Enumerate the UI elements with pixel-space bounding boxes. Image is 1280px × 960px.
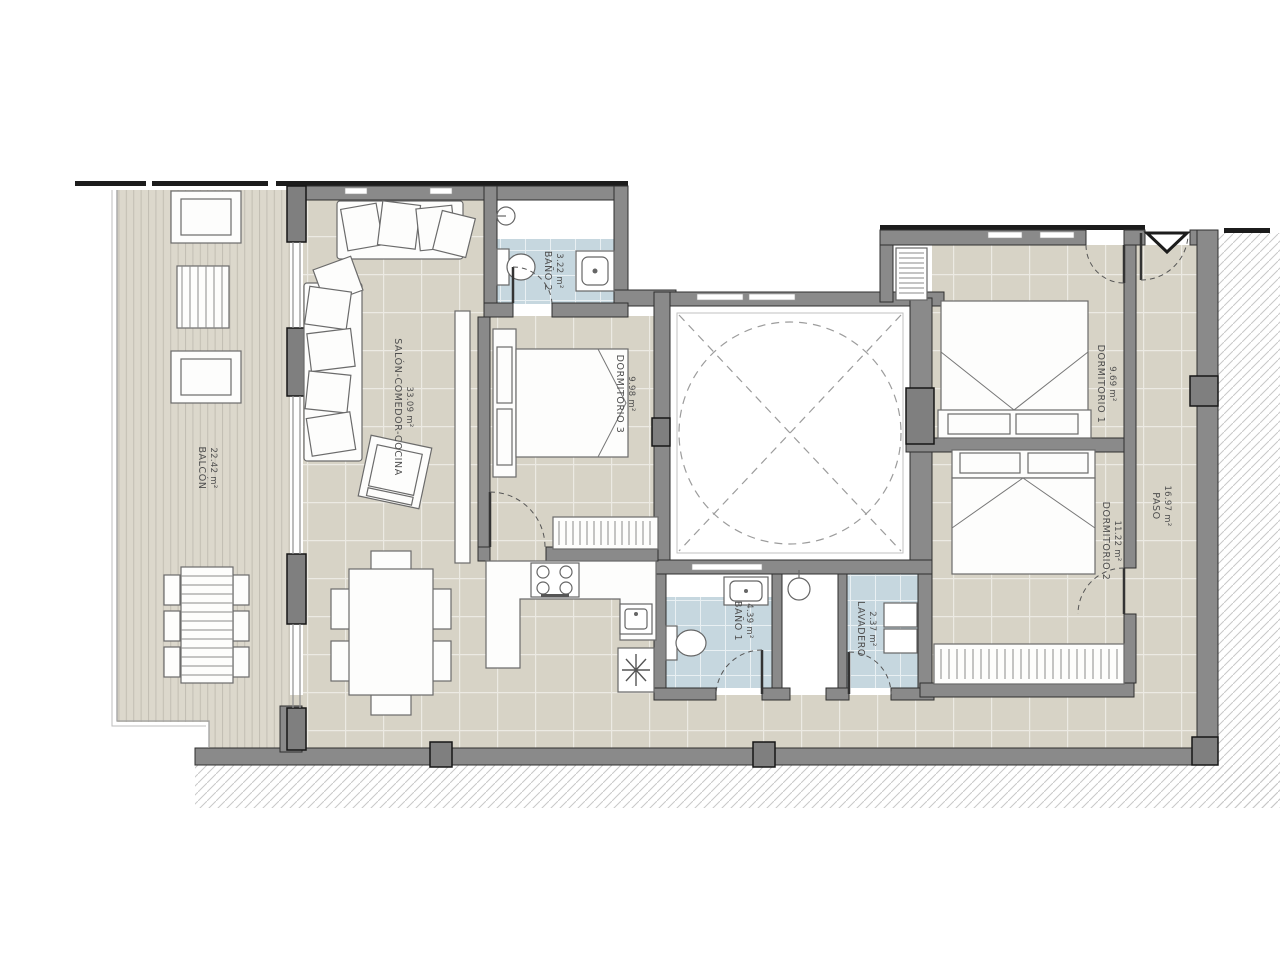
wardrobe-dormitorio-2: [934, 644, 1124, 684]
room-name: LAVADERO: [855, 601, 866, 657]
balcony-armchair-2: [171, 351, 241, 403]
room-area: 3.22 m²: [554, 253, 564, 288]
bed-dormitorio-2: [952, 450, 1095, 574]
kitchen-sink-icon: [620, 604, 652, 634]
room-area: 9.69 m²: [1107, 366, 1117, 401]
bath2-ceiling-light-icon: [497, 207, 515, 225]
room-name: SALÓN-COMEDOR-COCINA: [392, 338, 404, 476]
bath2-washbasin-icon: [576, 251, 614, 291]
room-name: DORMITORIO 3: [614, 355, 625, 434]
tv-sideboard: [455, 311, 470, 563]
balcony-armchair-1: [171, 191, 241, 243]
room-area: 11.22 m²: [1112, 520, 1122, 561]
fridge-snowflake-icon: [618, 648, 654, 692]
balcony-glazing: [293, 242, 300, 708]
radiator-grille: [896, 248, 927, 300]
stove-icon: [531, 563, 579, 597]
room-area: 16.97 m²: [1162, 485, 1172, 526]
room-name: BAÑO 1: [732, 601, 743, 641]
room-name: DORMITORIO 1: [1095, 345, 1106, 424]
balcony-side-table: [177, 266, 229, 328]
balcony-dining-table: [164, 567, 249, 683]
dining-table: [331, 551, 451, 715]
room-name: BAÑO 2: [542, 251, 553, 291]
bed-dormitorio-1: [938, 301, 1091, 438]
floor-plan-svg: BALCÓN 22.42 m² SALÓN-COMEDOR-COCINA 33.…: [0, 0, 1280, 960]
room-area: 22.42 m²: [208, 447, 218, 488]
room-name: BALCÓN: [196, 446, 208, 489]
room-label-balcon: BALCÓN 22.42 m²: [196, 446, 218, 489]
bed-dormitorio-3: [493, 329, 628, 477]
sofa-top: [337, 201, 475, 259]
bath1-washbasin-icon: [724, 577, 768, 605]
wardrobe-dormitorio-3: [553, 517, 658, 549]
room-area: 4.39 m²: [744, 603, 754, 638]
room-area: 33.09 m²: [404, 386, 414, 427]
floor-plan-screenshot: BALCÓN 22.42 m² SALÓN-COMEDOR-COCINA 33.…: [0, 0, 1280, 960]
room-area: 2.37 m²: [867, 611, 877, 646]
patio-lightwell: [670, 306, 910, 560]
room-name: PASO: [1150, 492, 1161, 520]
sofa-left: [304, 256, 363, 461]
room-label-bano1: BAÑO 1 4.39 m²: [732, 601, 754, 641]
room-name: DORMITORIO 2: [1100, 502, 1111, 581]
room-area: 9.98 m²: [626, 376, 636, 411]
room-label-bano2: BAÑO 2 3.22 m²: [542, 251, 564, 291]
